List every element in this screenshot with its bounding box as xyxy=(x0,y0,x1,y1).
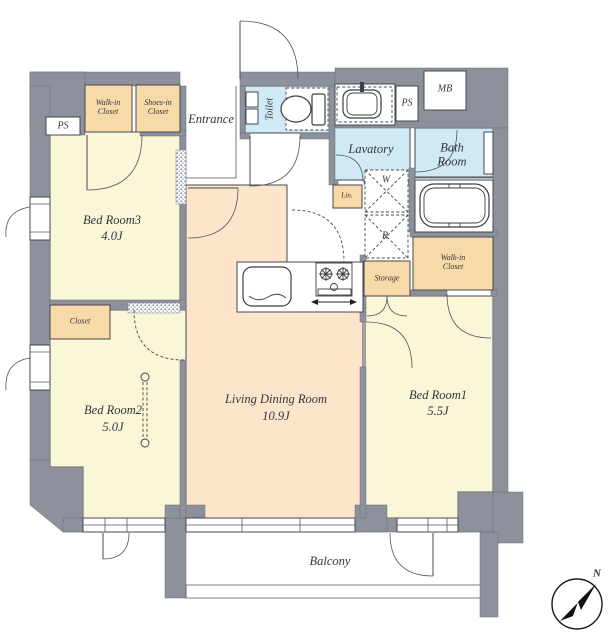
hatch-strip-horizontal xyxy=(128,303,180,313)
bath-room-floor xyxy=(415,128,493,177)
washer-space xyxy=(365,170,408,212)
bed-room3-floor xyxy=(50,132,180,305)
living-dining-floor xyxy=(186,185,363,518)
compass-icon xyxy=(552,579,602,629)
toilet-door xyxy=(250,136,300,186)
bathtub-icon xyxy=(420,184,489,227)
floor-plan: Walk-in Closet Shoes-in Closet PS Entran… xyxy=(0,0,610,640)
ps-right-box xyxy=(396,86,418,121)
appliance-spaces xyxy=(365,170,408,258)
closet-left-box xyxy=(50,305,110,339)
storage-box xyxy=(364,261,410,296)
bed-room2-side-window xyxy=(6,345,50,390)
bed-room1-floor xyxy=(365,296,493,518)
bed-room1-balcony-door xyxy=(390,533,433,576)
toilet-icon xyxy=(246,88,328,130)
kitchen-sink-icon xyxy=(243,267,291,306)
bed-room2-balcony-door xyxy=(103,533,129,559)
hatch-strip-vertical xyxy=(176,150,186,204)
bed-room2-balcony-window xyxy=(83,518,165,532)
bed-room1-balcony-window xyxy=(397,518,458,532)
mb-box xyxy=(424,71,466,110)
walk-in-closet-right-box xyxy=(413,237,493,290)
bath-niche xyxy=(484,132,493,174)
floor-plan-drawing xyxy=(0,0,610,640)
kitchen-counter xyxy=(237,262,363,312)
balcony-edge xyxy=(186,585,480,598)
entrance-step-line xyxy=(186,86,236,178)
walk-in-closet-top-box xyxy=(85,85,132,132)
bed-room3-window xyxy=(6,197,50,240)
ps-left-box xyxy=(46,117,80,135)
shoes-in-closet-box xyxy=(136,85,180,132)
living-balcony-window xyxy=(186,518,355,532)
refrigerator-space xyxy=(365,215,408,258)
hall-dashed-door xyxy=(292,210,344,262)
linen-box xyxy=(333,185,362,208)
entrance-door xyxy=(240,21,298,79)
